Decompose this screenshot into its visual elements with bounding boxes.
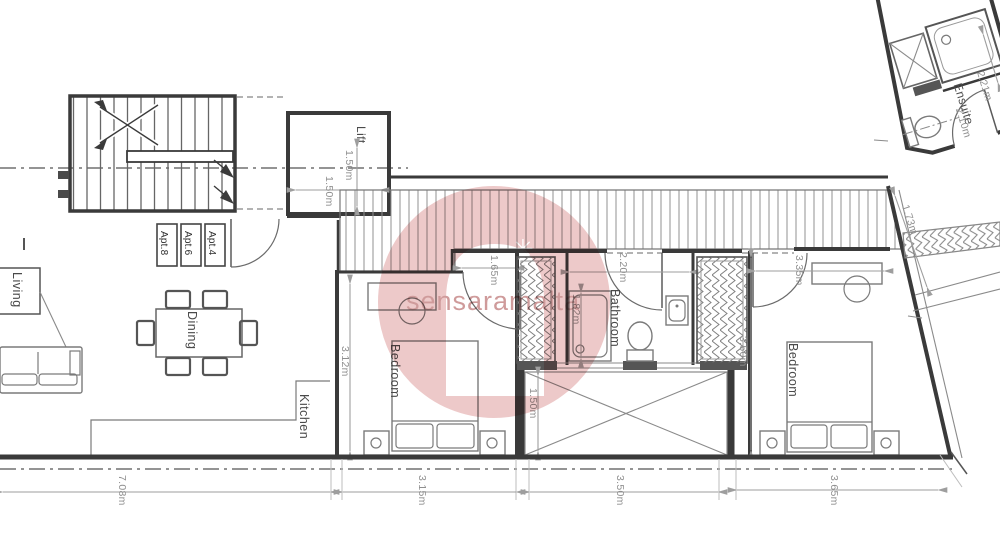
bathroom-label: Bathroom — [608, 289, 622, 347]
floor-plan-drawing: Lift 1.50m 1.50m Apt.8 Apt.6 Apt.4 1.65m — [0, 0, 1000, 542]
shower — [926, 9, 1000, 83]
bottom-wall — [0, 452, 967, 474]
kitchen-label: Kitchen — [297, 394, 311, 439]
lift-label: Lift — [354, 126, 368, 144]
bed2-bottom-dim: 3.65m — [828, 475, 840, 506]
dining-label: Dining — [185, 311, 199, 349]
apt-4-tag: Apt.4 — [206, 231, 217, 256]
living-label: Living — [10, 272, 24, 308]
kitchen-counter — [91, 381, 330, 457]
floor-plan-canvas: Lift 1.50m 1.50m Apt.8 Apt.6 Apt.4 1.65m — [0, 0, 1000, 542]
nightstand — [874, 431, 899, 455]
ensuite-dim-a: 2.21m — [974, 70, 994, 103]
lift-width-dim: 1.50m — [323, 176, 335, 207]
toilet — [627, 322, 653, 361]
nightstand — [364, 431, 389, 455]
bottom-dimensions: 7.08m 3.15m 3.50m 3.65m — [3, 455, 962, 506]
bedroom2-label: Bedroom — [786, 343, 800, 397]
sink — [666, 296, 688, 325]
bathroom-width-dim: 2.20m — [617, 252, 629, 283]
nightstand — [760, 431, 785, 455]
dining-area: Dining — [137, 291, 257, 375]
bedroom2-width-dim: 3.50m — [737, 336, 749, 367]
stair-side-dim: 1.73m — [899, 203, 920, 236]
kitchen: Kitchen — [91, 381, 330, 457]
wall-stub — [58, 190, 69, 198]
nightstand — [480, 431, 505, 455]
bed1-bottom-dim: 3.15m — [416, 475, 428, 506]
watermark-wordmark: sensaramalta — [406, 286, 580, 316]
watermark: ✳ sensaramalta — [378, 186, 610, 418]
wall-stub — [58, 171, 69, 179]
bedroom1-dim: 3.12m — [339, 346, 351, 377]
total-width-dim: 7.08m — [116, 475, 128, 506]
ensuite: Ensuite 2.21m 2.10m — [859, 0, 1000, 159]
living-area: Living — [0, 268, 82, 393]
watermark-house-icon — [446, 244, 544, 396]
watermark-star-icon: ✳ — [512, 234, 534, 264]
sofa — [0, 347, 82, 393]
lift-depth-dim: 1.50m — [343, 150, 355, 181]
apartment-labels: Apt.8 Apt.6 Apt.4 — [157, 224, 225, 266]
staircase-block — [58, 96, 287, 211]
apt-8-tag: Apt.8 — [158, 231, 169, 256]
mid-bottom-dim: 3.50m — [614, 475, 626, 506]
stair-handrail — [127, 151, 233, 162]
diagonal-wall — [888, 186, 951, 459]
wall-poche — [623, 361, 657, 370]
apt-6-tag: Apt.6 — [182, 231, 193, 256]
bedroom2-top-dim: 3.35m — [793, 255, 805, 286]
